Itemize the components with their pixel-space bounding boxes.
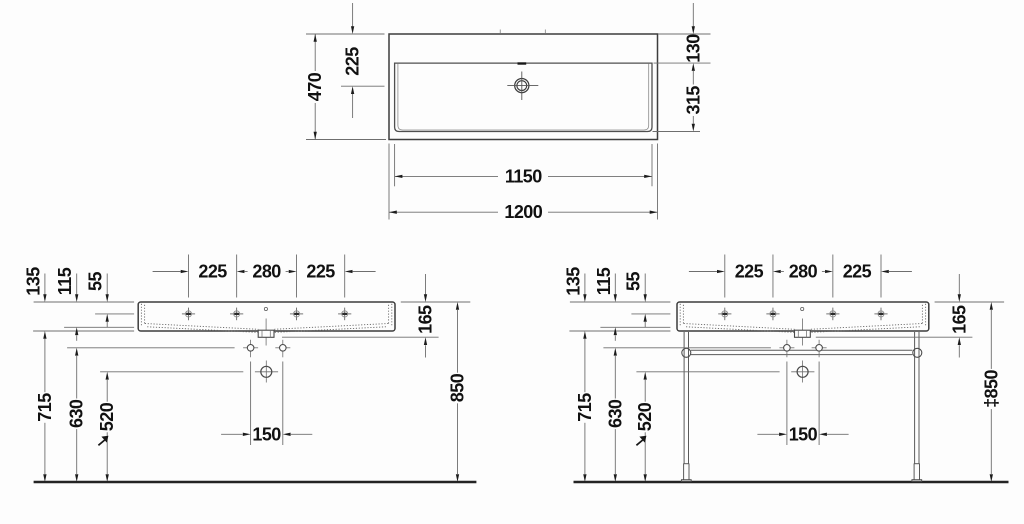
svg-text:225: 225: [843, 262, 872, 282]
svg-text:520: 520: [97, 402, 117, 431]
svg-text:55: 55: [86, 272, 106, 291]
svg-text:630: 630: [67, 399, 87, 428]
svg-text:1150: 1150: [505, 166, 542, 186]
svg-text:225: 225: [343, 47, 363, 76]
svg-text:150: 150: [252, 424, 281, 444]
svg-text:315: 315: [683, 86, 703, 115]
svg-text:715: 715: [575, 393, 595, 422]
svg-text:225: 225: [306, 262, 335, 282]
svg-text:‡850: ‡850: [981, 370, 1001, 408]
svg-text:115: 115: [594, 267, 614, 295]
svg-text:150: 150: [789, 424, 818, 444]
svg-text:520: 520: [635, 402, 655, 431]
svg-text:165: 165: [949, 305, 969, 334]
svg-text:280: 280: [789, 262, 818, 282]
svg-text:135: 135: [563, 267, 583, 296]
svg-text:135: 135: [23, 267, 43, 296]
svg-text:1200: 1200: [504, 202, 542, 222]
svg-text:55: 55: [624, 272, 644, 291]
svg-text:715: 715: [35, 393, 55, 422]
svg-text:630: 630: [605, 399, 625, 428]
svg-text:225: 225: [198, 262, 227, 282]
svg-text:280: 280: [252, 262, 281, 282]
svg-text:470: 470: [305, 72, 325, 101]
svg-text:850: 850: [448, 373, 468, 402]
svg-text:165: 165: [416, 305, 436, 334]
svg-text:225: 225: [735, 262, 764, 282]
svg-text:115: 115: [55, 267, 75, 295]
svg-text:130: 130: [683, 34, 703, 63]
